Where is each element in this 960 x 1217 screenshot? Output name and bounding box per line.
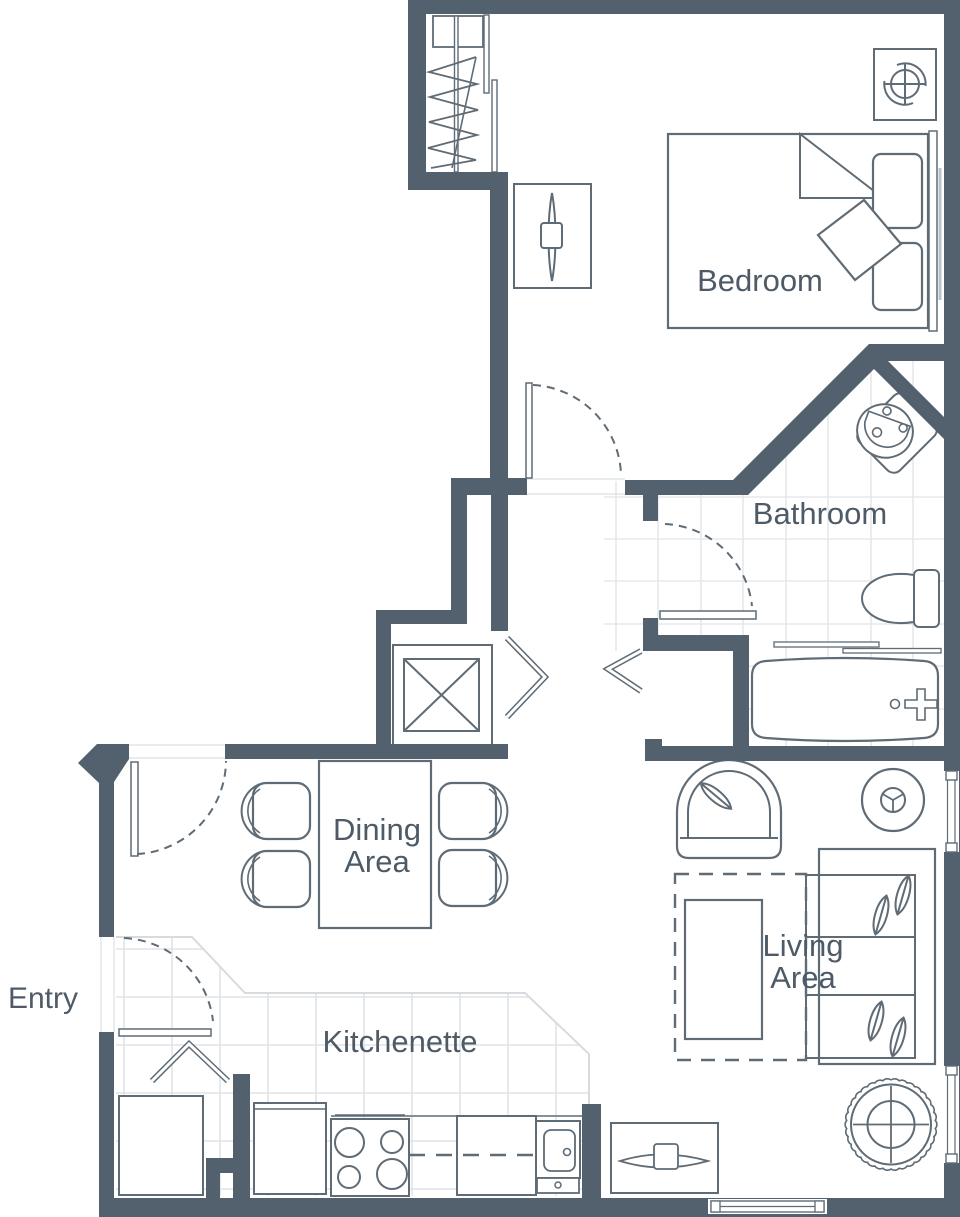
svg-text:Bedroom: Bedroom [697, 263, 823, 298]
svg-text:Bathroom: Bathroom [753, 496, 887, 531]
svg-text:Kitchenette: Kitchenette [322, 1024, 477, 1059]
svg-text:Area: Area [770, 960, 836, 995]
svg-text:Area: Area [344, 844, 410, 879]
svg-text:Entry: Entry [8, 982, 78, 1015]
svg-text:Living: Living [763, 928, 844, 963]
svg-text:Dining: Dining [333, 812, 421, 847]
